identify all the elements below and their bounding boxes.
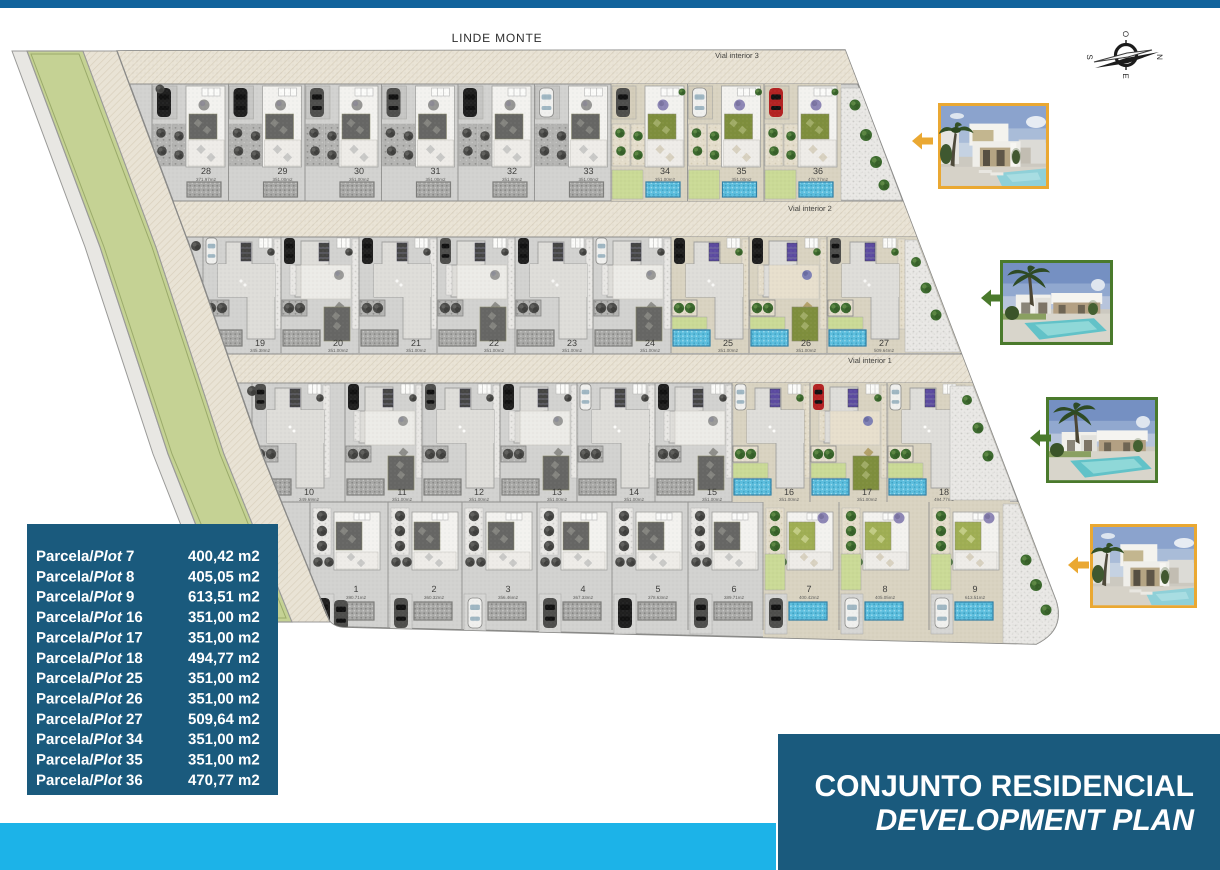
svg-text:Vial interior 1: Vial interior 1: [848, 356, 892, 365]
svg-text:E: E: [1121, 73, 1130, 78]
svg-text:351,00 m2: 351,00 m2: [188, 731, 260, 748]
svg-text:351,00 m2: 351,00 m2: [188, 609, 260, 626]
svg-text:CONJUNTO RESIDENCIAL: CONJUNTO RESIDENCIAL: [815, 770, 1194, 803]
svg-text:351,00 m2: 351,00 m2: [188, 629, 260, 646]
svg-text:351,00 m2: 351,00 m2: [188, 691, 260, 708]
svg-text:Parcela/Plot 35: Parcela/Plot 35: [36, 752, 143, 769]
svg-text:Parcela/Plot 16: Parcela/Plot 16: [36, 609, 143, 626]
svg-text:Vial interior 3: Vial interior 3: [715, 51, 759, 60]
svg-text:LINDE MONTE: LINDE MONTE: [452, 31, 543, 45]
svg-text:351,00 m2: 351,00 m2: [188, 752, 260, 769]
svg-text:Parcela/Plot 17: Parcela/Plot 17: [36, 629, 143, 646]
svg-text:613,51 m2: 613,51 m2: [188, 589, 260, 606]
svg-text:Parcela/Plot 26: Parcela/Plot 26: [36, 691, 143, 708]
svg-text:O: O: [1121, 31, 1130, 37]
svg-text:509,64 m2: 509,64 m2: [188, 711, 260, 728]
svg-text:Vial interior 2: Vial interior 2: [788, 204, 832, 213]
svg-text:405,05 m2: 405,05 m2: [188, 568, 260, 585]
svg-text:Parcela/Plot 7: Parcela/Plot 7: [36, 548, 134, 565]
svg-text:Parcela/Plot 25: Parcela/Plot 25: [36, 670, 143, 687]
svg-text:494,77 m2: 494,77 m2: [188, 650, 260, 667]
svg-text:400,42 m2: 400,42 m2: [188, 548, 260, 565]
svg-text:N: N: [1155, 54, 1164, 60]
svg-text:Parcela/Plot 34: Parcela/Plot 34: [36, 731, 143, 748]
svg-text:Parcela/Plot 18: Parcela/Plot 18: [36, 650, 143, 667]
svg-text:470,77 m2: 470,77 m2: [188, 772, 260, 789]
svg-text:Parcela/Plot 36: Parcela/Plot 36: [36, 772, 143, 789]
svg-text:351,00 m2: 351,00 m2: [188, 670, 260, 687]
svg-text:DEVELOPMENT PLAN: DEVELOPMENT PLAN: [876, 804, 1196, 837]
svg-text:Parcela/Plot 8: Parcela/Plot 8: [36, 568, 134, 585]
svg-text:Parcela/Plot 9: Parcela/Plot 9: [36, 589, 134, 606]
svg-text:Parcela/Plot 27: Parcela/Plot 27: [36, 711, 143, 728]
svg-text:S: S: [1085, 54, 1094, 59]
